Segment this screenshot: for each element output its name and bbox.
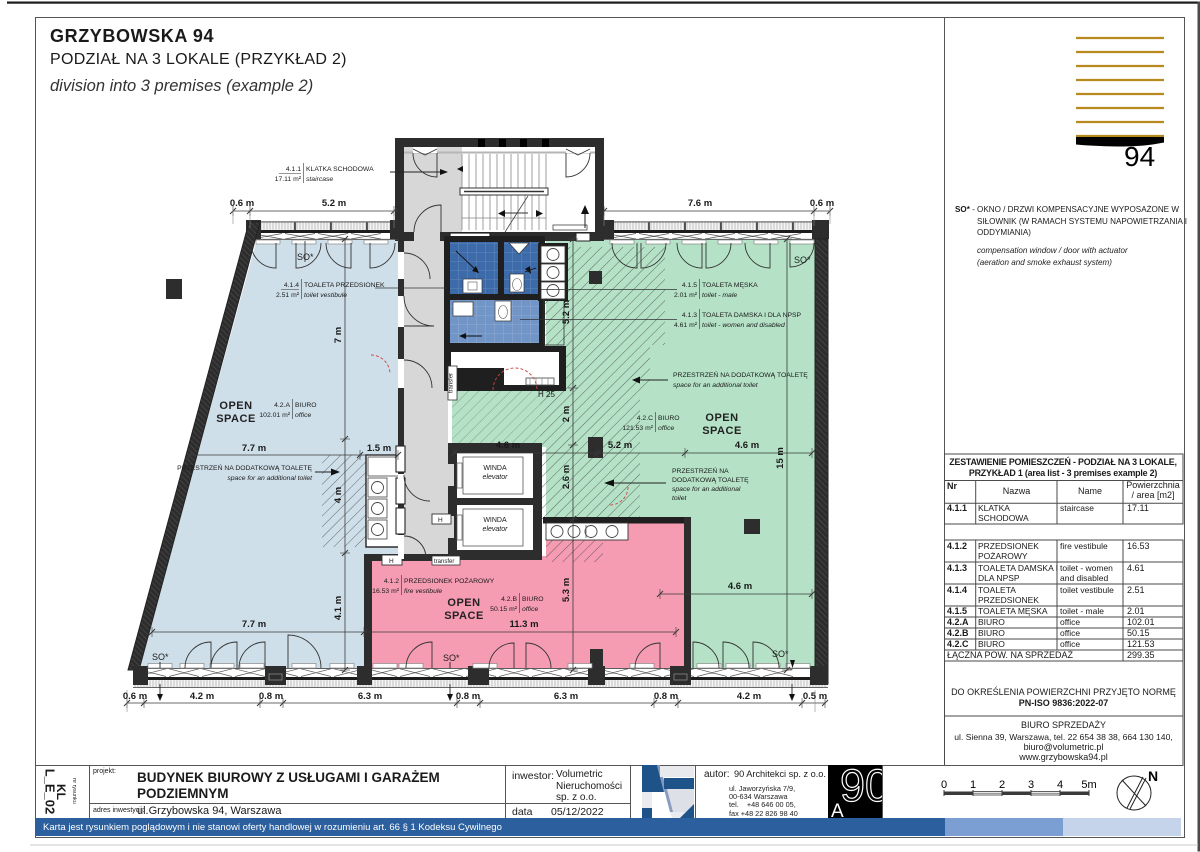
- svg-text:90: 90: [840, 765, 882, 811]
- svg-text:3: 3: [1028, 779, 1034, 791]
- svg-text:2: 2: [999, 779, 1005, 791]
- svg-text:94: 94: [1124, 141, 1155, 172]
- svg-text:A: A: [831, 801, 844, 818]
- svg-text:4: 4: [1057, 779, 1063, 791]
- svg-text:1: 1: [970, 779, 976, 791]
- svg-text:N: N: [1148, 768, 1158, 784]
- svg-text:0: 0: [941, 779, 947, 791]
- svg-text:5m: 5m: [1081, 779, 1096, 791]
